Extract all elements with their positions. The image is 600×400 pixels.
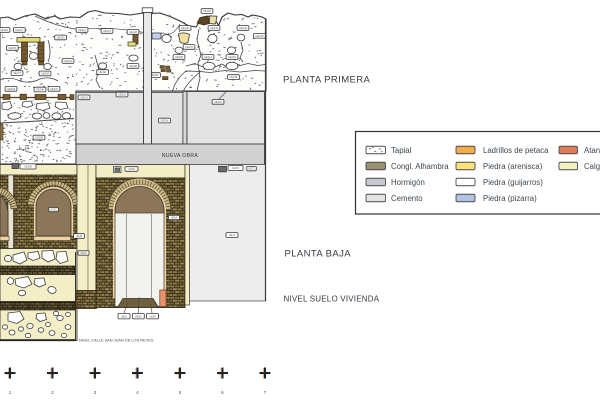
svg-text:UE135: UE135 (181, 26, 189, 30)
svg-text:PLANTA BAJA: PLANTA BAJA (285, 249, 352, 260)
svg-text:UE100: UE100 (203, 9, 211, 13)
svg-text:UE70: UE70 (232, 166, 239, 170)
svg-text:UE282: UE282 (0, 28, 8, 32)
svg-text:UE44: UE44 (80, 251, 87, 255)
svg-text:UE275: UE275 (256, 34, 264, 38)
svg-text:UE62: UE62 (135, 314, 142, 318)
svg-text:Cemento: Cemento (391, 194, 423, 203)
svg-text:UE203: UE203 (214, 100, 222, 104)
svg-text:UE184: UE184 (41, 72, 49, 76)
svg-text:UE247: UE247 (50, 87, 58, 91)
svg-text:UE52: UE52 (128, 167, 135, 171)
svg-text:Calgas: Calgas (584, 162, 600, 171)
svg-text:UE107: UE107 (15, 28, 23, 32)
svg-text:UE202: UE202 (118, 93, 126, 97)
svg-text:UE201: UE201 (80, 95, 88, 99)
svg-text:UE177: UE177 (13, 71, 21, 75)
svg-text:Piedra (pizarra): Piedra (pizarra) (483, 194, 537, 203)
svg-text:UE71: UE71 (248, 167, 255, 171)
svg-text:PLANTA PRIMERA: PLANTA PRIMERA (283, 75, 371, 86)
svg-text:UE114: UE114 (78, 28, 86, 32)
svg-text:NUEVA OBRA: NUEVA OBRA (162, 153, 198, 159)
svg-text:UE240: UE240 (36, 88, 44, 92)
svg-text:UE163: UE163 (57, 36, 65, 40)
svg-text:UE149: UE149 (239, 26, 247, 30)
svg-text:NIVEL CALLE SAN JUAN DE LOS RE: NIVEL CALLE SAN JUAN DE LOS REYES (79, 337, 154, 342)
svg-text:Hormigón: Hormigón (391, 178, 425, 187)
svg-text:UE305: UE305 (24, 165, 32, 169)
svg-text:UE63: UE63 (149, 314, 156, 318)
svg-text:UE61: UE61 (121, 314, 128, 318)
svg-text:UE40: UE40 (76, 234, 83, 238)
svg-text:UE31: UE31 (50, 208, 57, 212)
svg-text:Atanor: Atanor (584, 146, 600, 155)
svg-text:UE121: UE121 (103, 29, 111, 33)
svg-text:UE226: UE226 (230, 75, 238, 79)
svg-text:UE233: UE233 (7, 87, 15, 91)
svg-text:UE72: UE72 (229, 233, 236, 237)
svg-text:UE205: UE205 (175, 55, 183, 59)
svg-text:NIVEL SUELO VIVIENDA: NIVEL SUELO VIVIENDA (284, 295, 380, 304)
svg-text:UE254: UE254 (64, 59, 72, 63)
svg-text:UE268: UE268 (35, 136, 43, 140)
svg-text:UE54: UE54 (171, 216, 178, 220)
svg-text:UE142: UE142 (210, 26, 218, 30)
svg-text:Tapial: Tapial (391, 146, 412, 155)
svg-text:UE204: UE204 (161, 119, 169, 123)
svg-text:UE212: UE212 (204, 55, 212, 59)
svg-text:Congl. Alhambra: Congl. Alhambra (391, 162, 449, 171)
svg-text:UE128: UE128 (129, 30, 137, 34)
svg-text:Piedra (arenisca): Piedra (arenisca) (483, 162, 543, 171)
svg-text:UE219: UE219 (228, 55, 236, 59)
svg-text:UE170: UE170 (185, 45, 193, 49)
svg-text:Piedra (guijarros): Piedra (guijarros) (483, 178, 543, 187)
svg-text:UE198: UE198 (129, 64, 137, 68)
svg-text:Ladrillos de petaca: Ladrillos de petaca (483, 146, 549, 155)
svg-text:UE156: UE156 (8, 46, 16, 50)
svg-text:UE191: UE191 (99, 70, 107, 74)
